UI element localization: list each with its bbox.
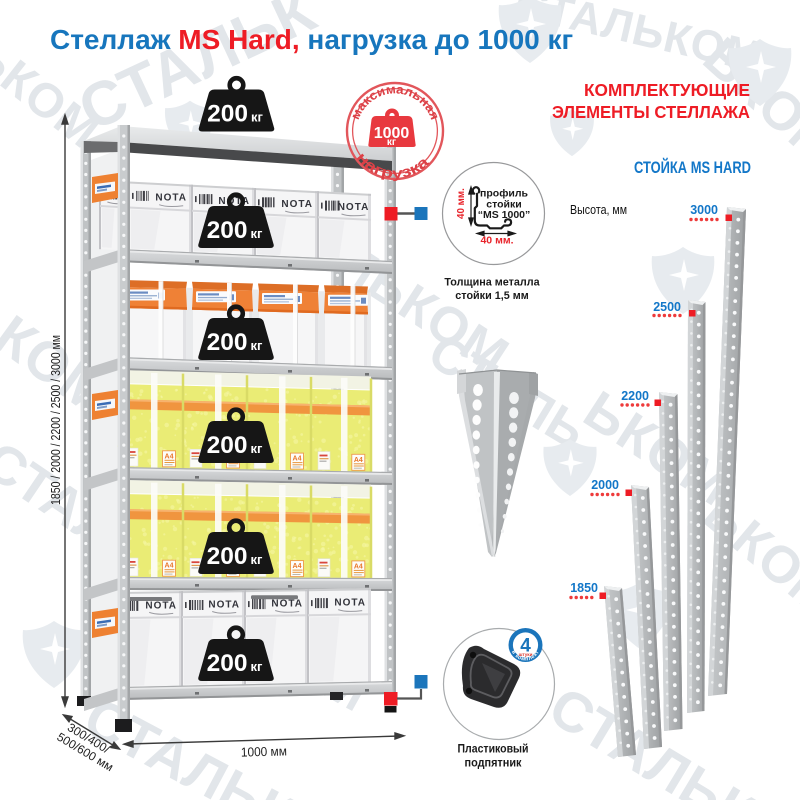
- svg-text:200: 200: [207, 650, 248, 677]
- svg-text:1000 мм: 1000 мм: [241, 743, 287, 759]
- svg-text:стойки 1,5 мм: стойки 1,5 мм: [455, 290, 528, 302]
- svg-text:1850: 1850: [570, 581, 598, 595]
- svg-text:Пластиковый: Пластиковый: [458, 742, 529, 756]
- svg-text:A4: A4: [354, 563, 363, 570]
- svg-text:40 мм.: 40 мм.: [480, 235, 513, 247]
- svg-text:кг: кг: [251, 441, 264, 456]
- svg-text:“MS 1000”: “MS 1000”: [478, 209, 531, 221]
- svg-text:A4: A4: [293, 456, 302, 463]
- svg-text:NOTA: NOTA: [218, 196, 250, 207]
- svg-text:200: 200: [207, 432, 248, 459]
- svg-text:2500: 2500: [653, 300, 681, 314]
- svg-text:200: 200: [207, 543, 248, 570]
- svg-text:A4: A4: [165, 453, 174, 460]
- svg-text:NOTA: NOTA: [208, 600, 240, 611]
- svg-text:Высота, мм: Высота, мм: [570, 203, 627, 217]
- svg-text:ЭЛЕМЕНТЫ СТЕЛЛАЖА: ЭЛЕМЕНТЫ СТЕЛЛАЖА: [552, 102, 750, 122]
- svg-text:2000: 2000: [591, 478, 619, 492]
- svg-text:200: 200: [207, 329, 248, 356]
- svg-text:40 мм.: 40 мм.: [456, 188, 467, 219]
- svg-text:A4: A4: [165, 563, 174, 570]
- svg-text:кг: кг: [251, 338, 264, 353]
- svg-text:200: 200: [207, 217, 248, 244]
- svg-text:200: 200: [207, 101, 248, 128]
- svg-text:кг: кг: [251, 659, 264, 674]
- svg-text:3000: 3000: [690, 203, 718, 217]
- svg-text:NOTA: NOTA: [281, 199, 313, 210]
- svg-text:A4: A4: [293, 563, 302, 570]
- svg-text:КОМПЛЕКТУЮЩИЕ: КОМПЛЕКТУЮЩИЕ: [584, 80, 750, 100]
- svg-text:NOTA: NOTA: [155, 193, 187, 204]
- svg-text:2200: 2200: [621, 389, 649, 403]
- svg-text:кг: кг: [387, 137, 396, 148]
- svg-text:Толщина металла: Толщина металла: [444, 277, 540, 289]
- svg-text:Стеллаж MS Hard, нагрузка до 1: Стеллаж MS Hard, нагрузка до 1000 кг: [50, 24, 573, 55]
- svg-text:NOTA: NOTA: [334, 598, 366, 609]
- svg-text:1850 / 2000 / 2200 / 2500 / 30: 1850 / 2000 / 2200 / 2500 / 3000 мм: [49, 335, 63, 505]
- svg-text:кг: кг: [251, 110, 264, 125]
- svg-text:кг: кг: [251, 226, 264, 241]
- svg-text:кг: кг: [251, 552, 264, 567]
- svg-text:A4: A4: [354, 457, 363, 464]
- svg-text:NOTA: NOTA: [145, 600, 177, 611]
- svg-text:NOTA: NOTA: [271, 599, 303, 610]
- svg-text:NOTA: NOTA: [338, 202, 370, 213]
- svg-text:СТОЙКА MS HARD: СТОЙКА MS HARD: [634, 158, 751, 177]
- svg-text:подпятник: подпятник: [465, 756, 523, 770]
